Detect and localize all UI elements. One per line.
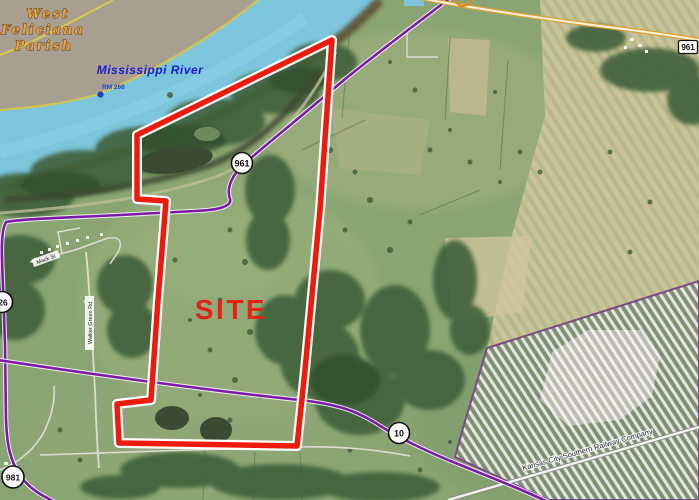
walker-green-label-group: Walker Green Rd: [85, 296, 94, 350]
site-label: SITE: [195, 294, 267, 325]
river-label: Mississippi River: [97, 63, 204, 77]
river-mile-label: RM 266: [102, 84, 125, 91]
small-pond: [404, 0, 424, 6]
shield-left-edge-label: 26: [0, 298, 8, 308]
parish-label-line2: Feliciana: [0, 23, 85, 38]
shield-la10-label: 10: [394, 429, 404, 439]
shield-la961-box-label: 961: [681, 43, 695, 52]
map-canvas: 961 10 26 981 961 West Feliciana Parish …: [0, 0, 699, 500]
shield-bottom-left-label: 981: [6, 473, 20, 483]
shield-la961-label: 961: [234, 159, 249, 169]
site-aerial-map: 961 10 26 981 961 West Feliciana Parish …: [0, 0, 699, 500]
parish-label-line3: Parish: [14, 39, 73, 54]
parish-label-line1: West: [26, 7, 69, 22]
shield-la961-box: 961: [679, 41, 698, 54]
walker-green-label: Walker Green Rd: [88, 302, 94, 344]
shield-la10-circle: 10: [389, 423, 410, 444]
river-mile-dot: [98, 92, 104, 98]
shield-la961-circle: 961: [232, 153, 253, 174]
shield-bottom-left-circle: 981: [2, 466, 24, 488]
